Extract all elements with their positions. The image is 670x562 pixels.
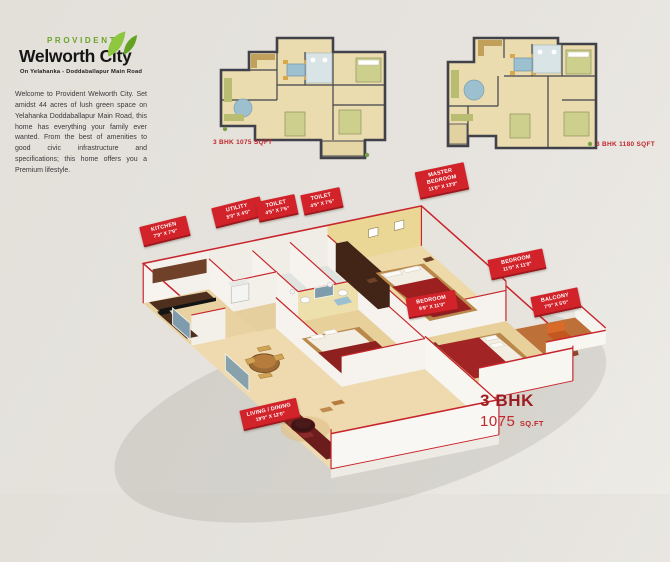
brand-block: PROVIDENT Welworth City On Yelahanka - D… [14,36,166,177]
floorplan-2d-1180-graphic [438,28,608,158]
unit-area: 1075 [480,413,515,430]
floorplan-2d-1075-graphic [215,30,395,168]
floorplan-2d-1180-caption: 3 BHK 1180 SQFT [596,141,666,148]
leaf-logo-icon [102,30,138,58]
floorplan-3d-graphic [108,168,648,562]
unit-summary: 3 BHK 1075 SQ.FT [480,391,544,431]
brand-tagline: On Yelahanka - Doddaballapur Main Road [20,69,166,75]
unit-type: 3 BHK [480,391,544,411]
unit-area-unit: SQ.FT [520,419,544,428]
brochure-page: { "brand": { "logo_top": "PROVIDENT", "l… [0,0,670,494]
floorplan-2d-1075-caption: 3 BHK 1075 SQFT [213,139,303,146]
brand-name-welworth-city: Welworth City [19,46,166,67]
welcome-paragraph: Welcome to Provident Welworth City. Set … [15,90,147,177]
utility-area [228,279,249,304]
